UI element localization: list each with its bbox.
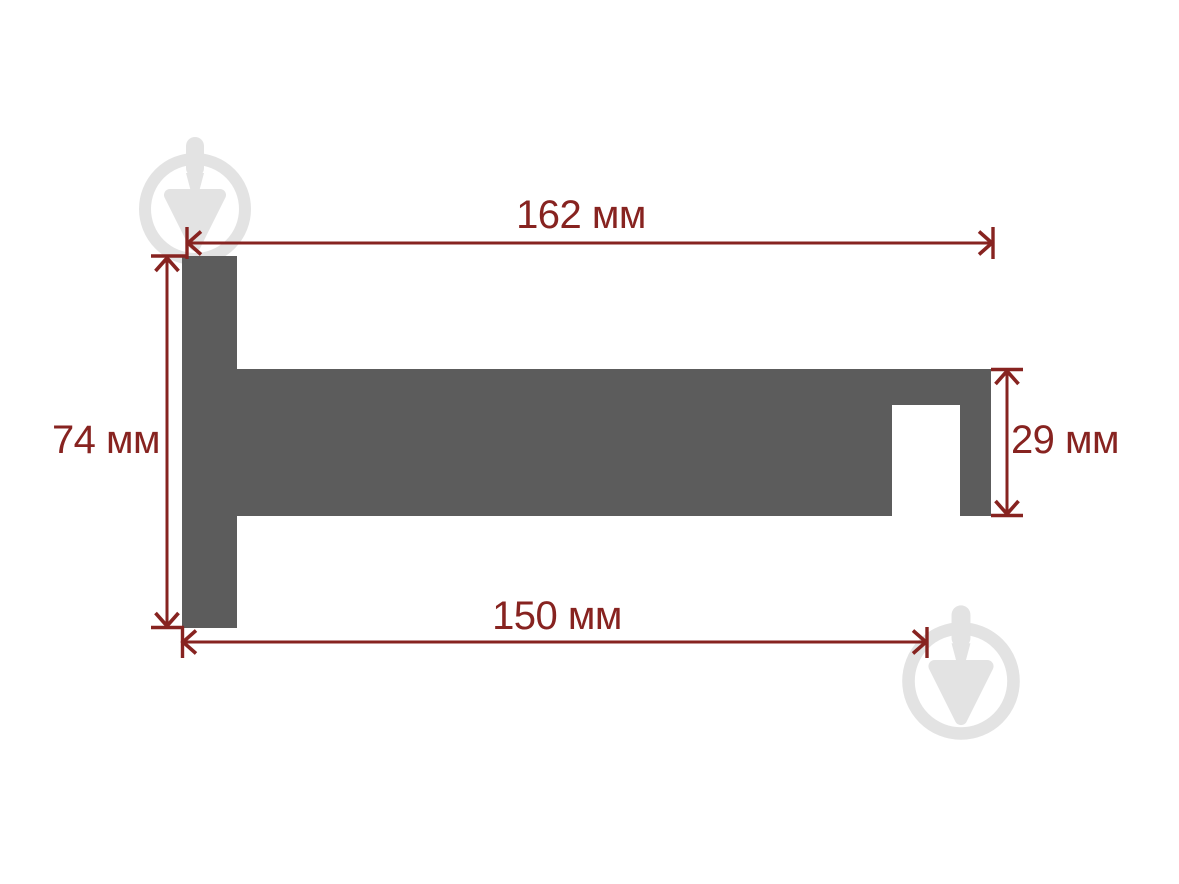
dimension-label-bottom: 150 мм	[407, 595, 707, 637]
trowel-watermark-icon	[909, 605, 1014, 733]
bracket-profile-shape	[182, 256, 991, 628]
trowel-watermark-icon	[145, 137, 245, 259]
diagram-canvas: 162 мм 74 мм 29 мм 150 мм	[0, 0, 1179, 884]
dimension-label-right: 29 мм	[985, 419, 1145, 461]
dimension-label-left: 74 мм	[26, 419, 186, 461]
dimension-label-top: 162 мм	[431, 194, 731, 236]
